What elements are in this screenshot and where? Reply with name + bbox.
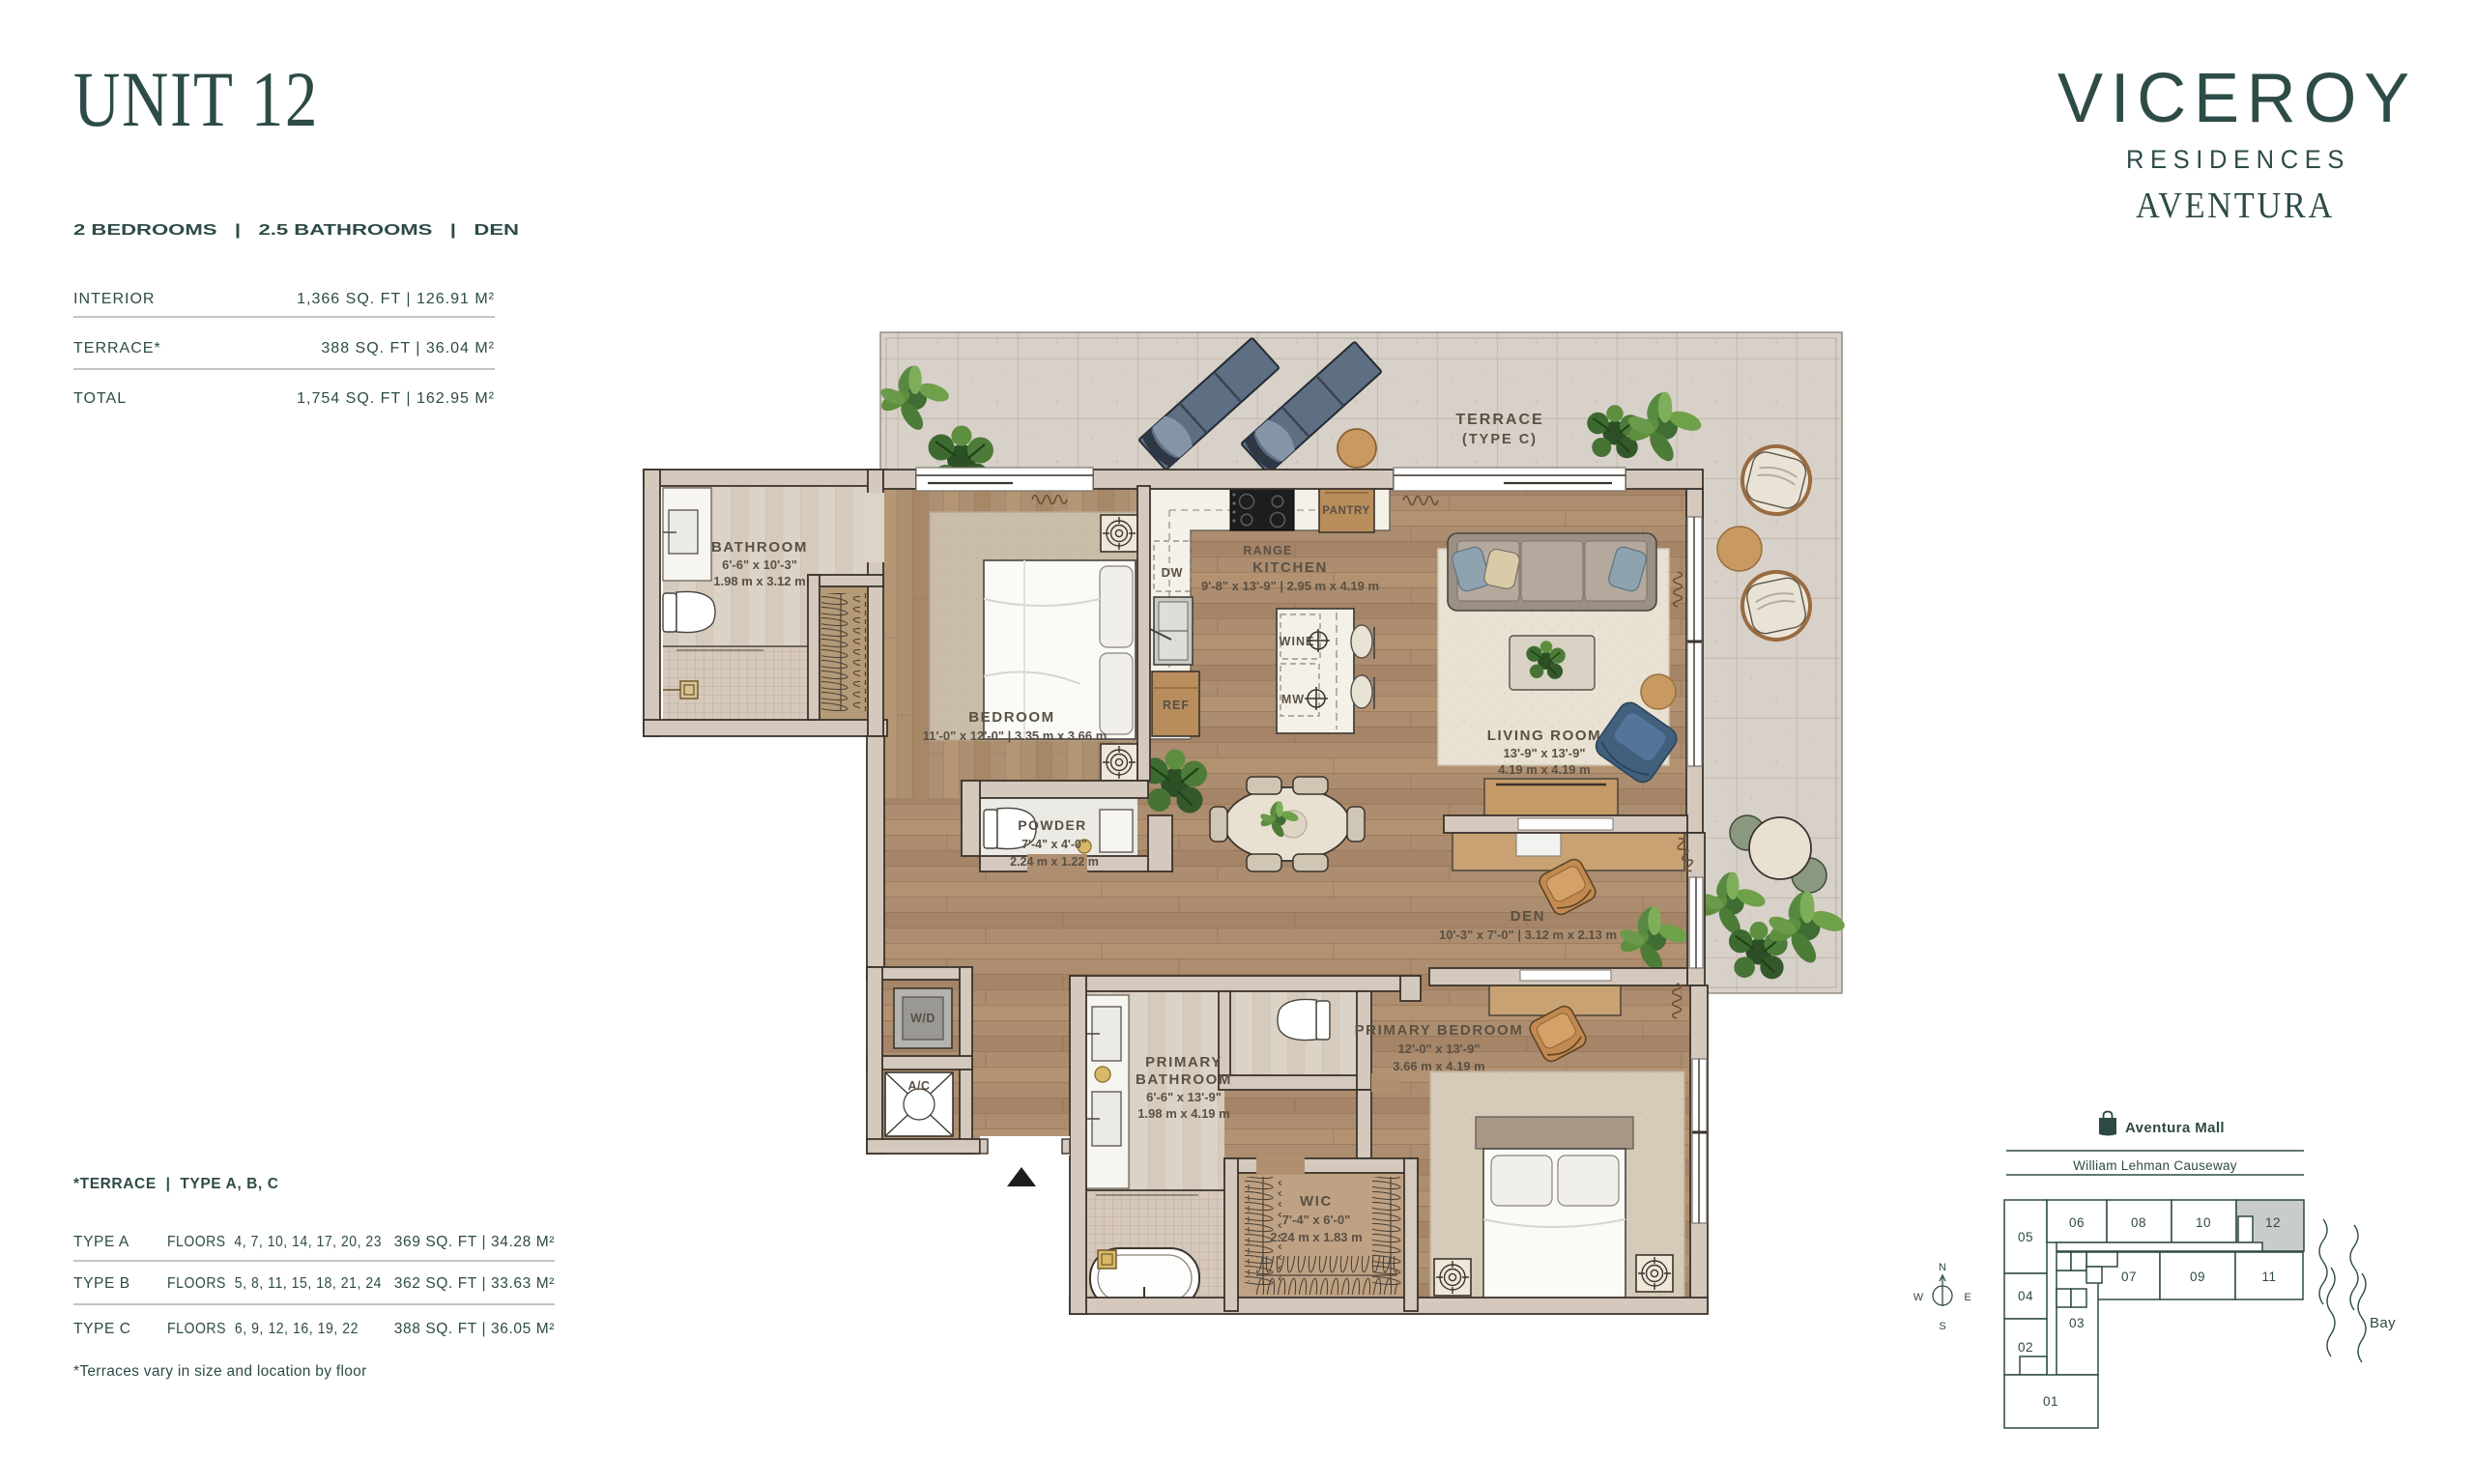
svg-text:07: 07 <box>2121 1270 2137 1284</box>
svg-text:04: 04 <box>2018 1289 2033 1303</box>
svg-text:10'-3" x 7'-0" | 3.12 m x 2.13: 10'-3" x 7'-0" | 3.12 m x 2.13 m <box>1439 927 1617 942</box>
svg-text:PRIMARY BEDROOM: PRIMARY BEDROOM <box>1355 1022 1524 1039</box>
svg-text:06: 06 <box>2069 1215 2085 1230</box>
svg-text:*TERRACE | TYPE A, B, C: *TERRACE | TYPE A, B, C <box>73 1176 279 1192</box>
svg-text:01: 01 <box>2043 1394 2058 1409</box>
svg-text:Aventura Mall: Aventura Mall <box>2125 1120 2225 1136</box>
svg-text:02: 02 <box>2018 1340 2033 1355</box>
svg-text:11'-0" x 12'-0" | 3.35 m x 3.6: 11'-0" x 12'-0" | 3.35 m x 3.66 m <box>923 728 1108 743</box>
svg-text:9'-8" x 13'-9" | 2.95 m x 4.19: 9'-8" x 13'-9" | 2.95 m x 4.19 m <box>1201 579 1379 593</box>
svg-text:S: S <box>1939 1321 1945 1332</box>
svg-text:7'-4" x 4'-0": 7'-4" x 4'-0" <box>1021 838 1087 851</box>
svg-text:369 SQ. FT | 34.28 M²: 369 SQ. FT | 34.28 M² <box>394 1234 555 1250</box>
svg-text:(TYPE C): (TYPE C) <box>1462 432 1538 447</box>
svg-text:VICEROY: VICEROY <box>2057 60 2417 137</box>
svg-text:2.24 m x 1.83 m: 2.24 m x 1.83 m <box>1270 1230 1362 1244</box>
svg-text:TERRACE*: TERRACE* <box>73 340 161 357</box>
svg-text:TYPE B: TYPE B <box>73 1275 130 1292</box>
svg-text:13'-9" x 13'-9": 13'-9" x 13'-9" <box>1503 746 1585 760</box>
svg-text:TERRACE: TERRACE <box>1455 412 1543 428</box>
svg-text:N: N <box>1939 1262 1946 1273</box>
svg-text:REF: REF <box>1163 699 1190 712</box>
svg-text:MW: MW <box>1281 693 1305 706</box>
svg-text:*Terraces vary in size and loc: *Terraces vary in size and location by f… <box>73 1363 367 1380</box>
svg-text:LIVING ROOM: LIVING ROOM <box>1487 728 1601 744</box>
svg-text:William Lehman Causeway: William Lehman Causeway <box>2073 1158 2237 1173</box>
svg-text:BATHROOM: BATHROOM <box>711 539 808 556</box>
svg-text:7'-4" x 6'-0": 7'-4" x 6'-0" <box>1282 1213 1351 1227</box>
svg-text:A/C: A/C <box>907 1079 930 1093</box>
svg-text:2 BEDROOMS | 2.5 BATHROOMS: 2 BEDROOMS | 2.5 BATHROOMS | DEN <box>73 222 519 239</box>
svg-text:RANGE: RANGE <box>1243 544 1292 557</box>
svg-text:W: W <box>1913 1292 1924 1303</box>
svg-text:1,366 SQ. FT | 126.91 M²: 1,366 SQ. FT | 126.91 M² <box>297 291 495 307</box>
svg-text:6'-6" x 13'-9": 6'-6" x 13'-9" <box>1146 1090 1222 1104</box>
svg-text:4.19 m x 4.19 m: 4.19 m x 4.19 m <box>1498 762 1590 777</box>
svg-text:1.98 m x 4.19 m: 1.98 m x 4.19 m <box>1137 1106 1229 1121</box>
svg-text:INTERIOR: INTERIOR <box>73 291 155 307</box>
svg-text:W/D: W/D <box>910 1012 935 1025</box>
svg-text:1.98 m x 3.12 m: 1.98 m x 3.12 m <box>713 574 805 588</box>
svg-text:TYPE A: TYPE A <box>73 1234 129 1250</box>
svg-text:388 SQ. FT | 36.05 M²: 388 SQ. FT | 36.05 M² <box>394 1321 555 1337</box>
svg-text:DEN: DEN <box>1510 908 1545 925</box>
svg-text:FLOORS 6, 9, 12, 16, 19, 22: FLOORS 6, 9, 12, 16, 19, 22 <box>167 1321 359 1337</box>
svg-text:E: E <box>1964 1292 1971 1303</box>
svg-text:BEDROOM: BEDROOM <box>968 709 1055 726</box>
svg-text:FLOORS 4, 7, 10, 14, 17, 20,: FLOORS 4, 7, 10, 14, 17, 20, 23 <box>167 1234 382 1250</box>
svg-text:UNIT 12: UNIT 12 <box>73 55 319 143</box>
svg-text:RESIDENCES: RESIDENCES <box>2126 145 2350 174</box>
svg-text:AVENTURA: AVENTURA <box>2136 185 2335 226</box>
svg-text:Bay: Bay <box>2370 1315 2396 1331</box>
svg-text:03: 03 <box>2069 1316 2085 1330</box>
svg-text:TYPE C: TYPE C <box>73 1321 131 1337</box>
svg-text:BATHROOM: BATHROOM <box>1136 1071 1232 1088</box>
svg-text:WIC: WIC <box>1300 1193 1333 1210</box>
svg-text:11: 11 <box>2261 1270 2276 1284</box>
svg-text:TOTAL: TOTAL <box>73 390 127 407</box>
svg-text:FLOORS 5, 8, 11, 15, 18, 21,: FLOORS 5, 8, 11, 15, 18, 21, 24 <box>167 1275 382 1292</box>
svg-text:3.66 m x 4.19 m: 3.66 m x 4.19 m <box>1393 1059 1484 1073</box>
svg-text:PRIMARY: PRIMARY <box>1145 1054 1223 1070</box>
svg-text:6'-6" x 10'-3": 6'-6" x 10'-3" <box>722 557 797 572</box>
svg-text:12'-0" x 13'-9": 12'-0" x 13'-9" <box>1397 1042 1480 1056</box>
svg-text:12: 12 <box>2265 1215 2281 1230</box>
svg-text:POWDER: POWDER <box>1018 817 1086 833</box>
svg-text:PANTRY: PANTRY <box>1322 505 1370 517</box>
svg-text:388 SQ. FT | 36.04 M²: 388 SQ. FT | 36.04 M² <box>321 340 495 357</box>
svg-text:DW: DW <box>1162 566 1184 580</box>
svg-text:2.24 m x 1.22 m: 2.24 m x 1.22 m <box>1010 855 1099 869</box>
svg-text:05: 05 <box>2018 1230 2033 1244</box>
svg-text:1,754 SQ. FT | 162.95 M²: 1,754 SQ. FT | 162.95 M² <box>297 390 495 407</box>
svg-text:09: 09 <box>2190 1270 2205 1284</box>
svg-text:KITCHEN: KITCHEN <box>1252 559 1328 576</box>
svg-text:362 SQ. FT | 33.63 M²: 362 SQ. FT | 33.63 M² <box>394 1275 555 1292</box>
svg-text:10: 10 <box>2196 1215 2211 1230</box>
svg-text:08: 08 <box>2131 1215 2146 1230</box>
